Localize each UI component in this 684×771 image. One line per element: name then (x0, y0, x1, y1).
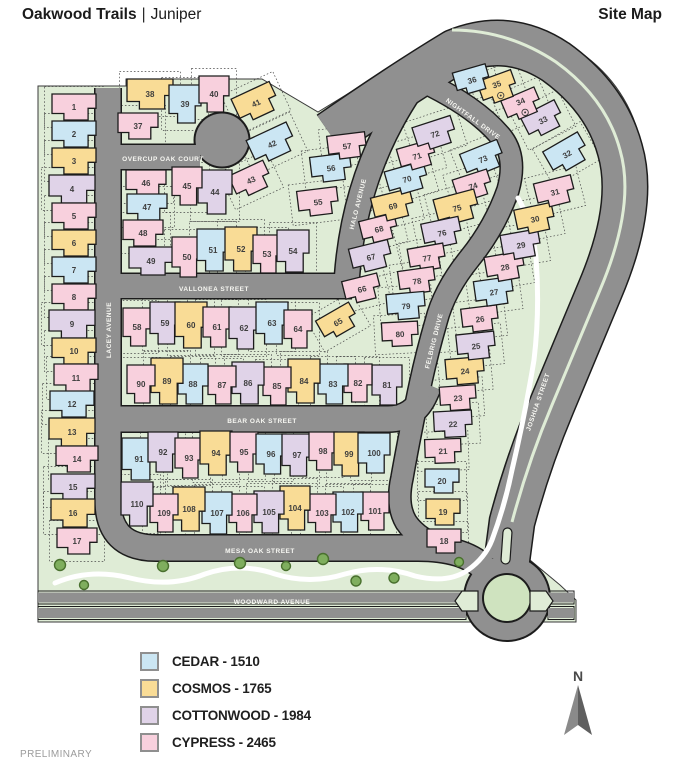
lot-number: 52 (237, 245, 246, 254)
lot-number: 93 (185, 454, 194, 463)
lot-number: 4 (70, 185, 75, 194)
tree-icon (235, 558, 246, 569)
legend-label: CYPRESS - 2465 (172, 735, 276, 750)
lot-number: 80 (395, 330, 405, 339)
lot-number: 94 (212, 449, 221, 458)
lot-number: 110 (131, 500, 144, 509)
legend-swatch (140, 679, 159, 698)
legend: CEDAR - 1510COSMOS - 1765COTTONWOOD - 19… (140, 648, 311, 756)
tree-icon (158, 561, 169, 572)
lot-number: 21 (438, 447, 448, 456)
lot-number: 50 (183, 253, 192, 262)
lot-number: 98 (319, 447, 328, 456)
lot-number: 91 (135, 455, 144, 464)
lot-number: 105 (262, 508, 276, 517)
lot-number: 101 (368, 507, 382, 516)
lot-number: 37 (134, 122, 143, 131)
lot-number: 12 (68, 400, 77, 409)
legend-label: COTTONWOOD - 1984 (172, 708, 311, 723)
lot-number: 54 (289, 247, 298, 256)
lot-number: 85 (273, 382, 282, 391)
lot-number: 81 (383, 381, 392, 390)
lot-number: 103 (315, 509, 329, 518)
lot-number: 20 (438, 477, 447, 486)
tree-icon (318, 554, 329, 565)
lot-number: 84 (300, 377, 309, 386)
lot-number: 53 (263, 250, 272, 259)
street-label-bear-oak-street: BEAR OAK STREET (227, 418, 297, 425)
lot-number: 109 (157, 509, 171, 518)
lot-number: 3 (72, 157, 77, 166)
lot-number: 26 (475, 314, 485, 324)
lot-number: 87 (218, 381, 227, 390)
lot-number: 9 (70, 320, 75, 329)
lot-number: 63 (268, 319, 277, 328)
lot-number: 5 (72, 212, 77, 221)
lot-number: 14 (73, 455, 82, 464)
lot-number: 56 (326, 163, 336, 173)
lot-number: 24 (460, 367, 470, 377)
legend-item: CEDAR - 1510 (140, 648, 311, 675)
tree-icon (55, 560, 66, 571)
lot-number: 11 (72, 374, 81, 383)
legend-item: COSMOS - 1765 (140, 675, 311, 702)
legend-item: CYPRESS - 2465 (140, 729, 311, 756)
lot-number: 55 (313, 197, 323, 207)
lot-number: 47 (143, 203, 152, 212)
lot-number: 39 (181, 100, 190, 109)
legend-label: CEDAR - 1510 (172, 654, 260, 669)
lot-number: 89 (163, 377, 172, 386)
legend-swatch (140, 733, 159, 752)
lot-number: 19 (439, 508, 448, 517)
lot-number: 2 (72, 130, 77, 139)
street-label-overcup-oak-court: OVERCUP OAK COURT (122, 156, 204, 163)
north-arrow-icon (556, 685, 600, 737)
lot-number: 108 (182, 505, 196, 514)
lot-number: 90 (137, 380, 146, 389)
lot-number: 92 (159, 448, 168, 457)
street-label-vallonea-street: VALLONEA STREET (179, 286, 249, 293)
lot-number: 102 (341, 508, 355, 517)
street-label-lacey-avenue: LACEY AVENUE (106, 302, 113, 358)
lot-number: 60 (187, 321, 196, 330)
lot-number: 95 (240, 448, 249, 457)
lot-number: 18 (440, 537, 449, 546)
lot-number: 48 (139, 229, 148, 238)
tree-icon (282, 562, 291, 571)
lot-number: 23 (453, 394, 463, 404)
street-label-mesa-oak-street: MESA OAK STREET (225, 548, 295, 555)
lot-number: 16 (69, 509, 78, 518)
lot-number: 62 (240, 324, 249, 333)
lot-number: 79 (401, 302, 411, 312)
lot-number: 38 (146, 90, 155, 99)
lot-number: 15 (69, 483, 78, 492)
lot-number: 83 (329, 380, 338, 389)
legend-item: COTTONWOOD - 1984 (140, 702, 311, 729)
north-label: N (556, 668, 600, 684)
lot-number: 45 (183, 182, 192, 191)
compass: N (556, 668, 600, 742)
lot-number: 13 (68, 428, 77, 437)
lot-number: 57 (342, 141, 352, 151)
median-island-top (501, 528, 512, 565)
lot-number: 58 (133, 323, 142, 332)
tree-icon (351, 576, 361, 586)
lot-number: 51 (209, 246, 218, 255)
lot-number: 100 (367, 449, 381, 458)
lot-number: 6 (72, 239, 77, 248)
lot-number: 10 (70, 347, 79, 356)
lot-number: 88 (189, 380, 198, 389)
street-label-woodward-avenue: WOODWARD AVENUE (234, 599, 311, 606)
site-map-graphic: 1234567891011121314151617181920212223242… (0, 0, 684, 771)
lot-number: 99 (345, 450, 354, 459)
lot-number: 17 (73, 537, 82, 546)
lot-number: 97 (293, 451, 302, 460)
tree-icon (389, 573, 399, 583)
legend-swatch (140, 706, 159, 725)
lot-number: 96 (267, 450, 276, 459)
lot-number: 59 (161, 319, 170, 328)
legend-label: COSMOS - 1765 (172, 681, 271, 696)
lot-number: 8 (72, 293, 77, 302)
lot-number: 61 (213, 323, 222, 332)
lot-number: 82 (354, 379, 363, 388)
lot-number: 44 (211, 188, 220, 197)
lot-number: 1 (72, 103, 77, 112)
lot-number: 46 (142, 179, 151, 188)
legend-swatch (140, 652, 159, 671)
lot-number: 27 (489, 287, 500, 297)
lot-number: 86 (244, 379, 253, 388)
lot-number: 106 (236, 509, 250, 518)
lot-number: 49 (147, 257, 156, 266)
tree-icon (455, 558, 464, 567)
site-map-page: Oakwood Trails|Juniper Site Map (0, 0, 684, 771)
lot-number: 40 (210, 90, 219, 99)
preliminary-note: PRELIMINARY (20, 749, 92, 760)
lot-number: 64 (294, 325, 303, 334)
lot-number: 107 (210, 509, 224, 518)
lot-number: 22 (448, 420, 458, 429)
lot-number: 7 (72, 266, 77, 275)
lot-number: 25 (471, 341, 481, 351)
tree-icon (80, 581, 89, 590)
lot-number: 78 (412, 276, 423, 286)
lot-number: 104 (288, 504, 302, 513)
